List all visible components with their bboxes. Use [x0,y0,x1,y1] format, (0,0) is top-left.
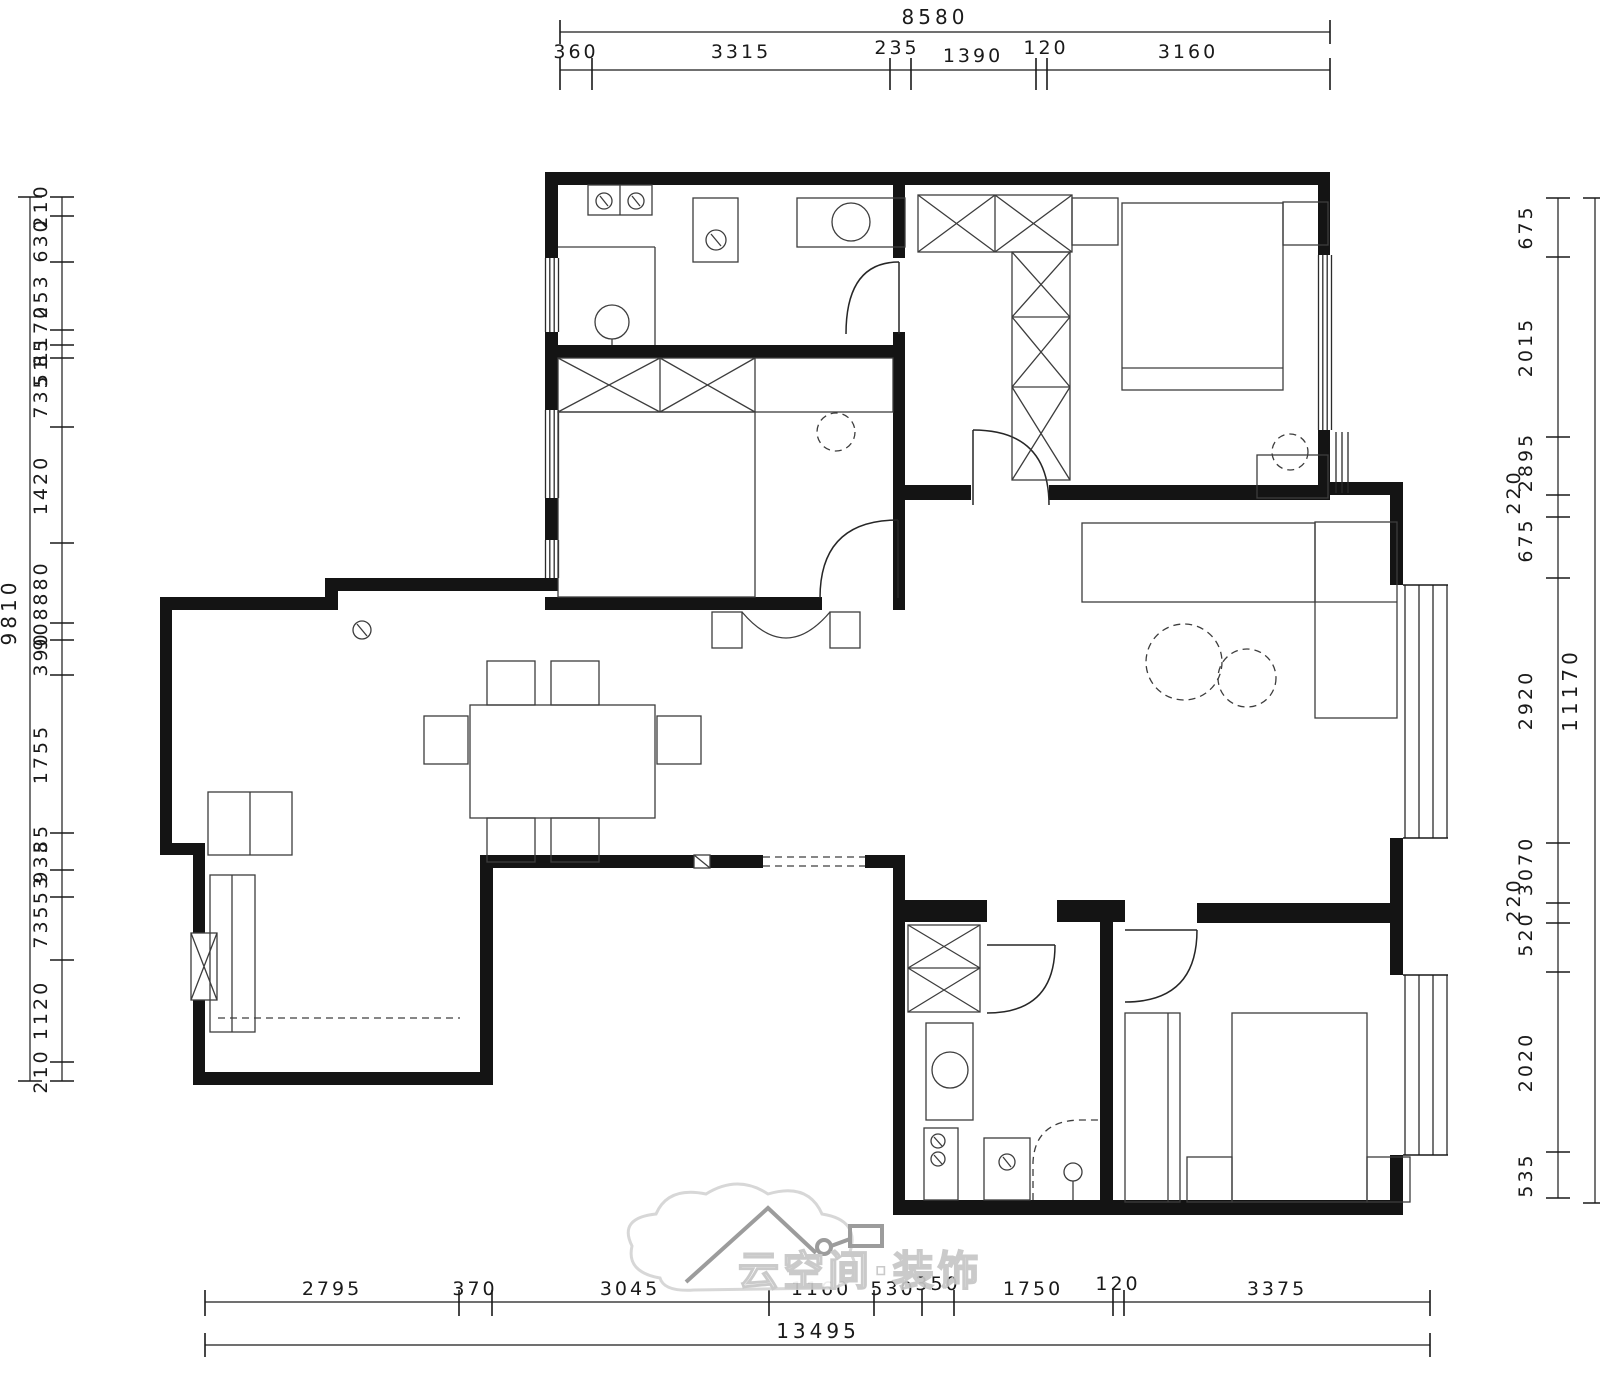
kitchen [558,185,905,345]
side-table-icon [1218,649,1276,707]
wardrobe [1012,252,1070,480]
dim-label: 360 [553,41,598,63]
dim-label: 53 [30,874,52,904]
dim-label: 3160 [1158,41,1218,63]
dimension-chain-top: 8580 360 3315 235 1390 120 3160 [553,5,1330,90]
dim-label: 3045 [600,1278,660,1300]
dim-label: 1755 [30,724,52,784]
sink-counter [797,198,905,247]
dining-table [470,705,655,818]
bed [1232,1013,1367,1202]
middle-room [558,358,893,597]
dim-label: 735 [30,903,52,948]
sink-counter [924,1128,958,1200]
door-middle-room [820,520,898,598]
washing-machine-drum-icon [932,1052,968,1088]
dim-label: 120 [1095,1273,1140,1295]
dim-label: 735 [30,373,52,418]
console-leg [712,612,742,648]
console-curve [742,612,830,638]
door-bathroom [987,945,1055,1013]
entry-hall [208,612,860,1032]
dining [424,661,701,862]
dim-label: 220 [1503,469,1525,514]
sofa-chaise [1315,522,1397,718]
entry-window-x [191,933,217,1000]
bay-window-bedroom2 [1403,975,1448,1155]
wardrobe [1125,1013,1180,1202]
bed [1122,203,1283,390]
walls [160,172,1403,1215]
dim-label: 390 [30,631,52,676]
dim-label: 210 [30,1048,52,1093]
dim-label: 535 [1515,1152,1537,1197]
washing-machine [926,1023,973,1120]
bedroom2 [1125,1013,1410,1202]
bathroom [908,925,1100,1200]
dimension-chain-right: 11170 675 2015 2895 220 675 2920 3070 22… [1503,198,1600,1203]
living-room [1082,522,1397,718]
dim-label: 2020 [1515,1032,1537,1092]
dim-label: 120 [1023,37,1068,59]
dim-label: 880 [30,560,52,605]
dim-label: 675 [1515,204,1537,249]
shower-drain-icon [1064,1163,1082,1181]
dim-label: 2920 [1515,670,1537,730]
dim-label: 2795 [302,1278,362,1300]
bay-window-living [1403,585,1448,838]
window-kitchen-left [546,258,559,332]
dim-total-right: 11170 [1558,648,1582,732]
window-middleroom-left [546,410,559,498]
bedroom1 [918,195,1328,498]
logo-chimney-icon [850,1226,882,1246]
console-leg [830,612,860,648]
ceiling-lamp-icon [817,413,855,451]
dim-label: 1390 [943,45,1003,67]
sofa [1082,523,1315,602]
coffee-table-icon [1146,624,1222,700]
dim-label: 3315 [711,41,771,63]
dim-label: 1120 [30,980,52,1040]
bed [558,412,755,597]
door-kitchen [846,262,899,334]
watermark-text: 云空间·装饰 [738,1247,983,1295]
door-bedroom1 [973,430,1049,505]
dimension-chain-left: 9810 210 630 253 1170 85 51 735 1420 880… [0,183,74,1093]
chair [487,661,535,705]
dim-total-bottom: 13495 [776,1319,860,1343]
dim-label: 675 [1515,517,1537,562]
kitchen-sink-icon [832,203,870,241]
window-left-lower [546,540,559,578]
dim-total-left: 9810 [0,579,21,646]
floor-plan-page: 8580 360 3315 235 1390 120 3160 13495 27… [0,0,1600,1373]
nightstand [1187,1157,1232,1202]
dim-label: 2015 [1515,317,1537,377]
dim-label: 235 [874,37,919,59]
nightstand [1072,198,1118,245]
dim-total-top: 8580 [902,5,969,29]
dim-label: 1750 [1003,1278,1063,1300]
floor-drain-icon [595,305,629,339]
door-bedroom2 [1125,930,1197,1002]
chair [551,661,599,705]
dim-label: 3375 [1247,1278,1307,1300]
lamp-icon [1272,434,1308,470]
dim-label: 1420 [30,455,52,515]
window-bedroom1-right [1319,255,1332,430]
cased-opening-hall [763,857,865,866]
dim-label: 630 [30,217,52,262]
floor-plan-drawing: 8580 360 3315 235 1390 120 3160 13495 27… [0,0,1600,1373]
toilet [984,1138,1030,1200]
dim-label: 370 [452,1278,497,1300]
dim-label: 520 [1515,911,1537,956]
chair [424,716,468,764]
kitchen-counter [558,247,655,345]
nightstand [1367,1157,1410,1202]
shower-enclosure-dashed [1033,1120,1100,1200]
chair [657,716,701,764]
